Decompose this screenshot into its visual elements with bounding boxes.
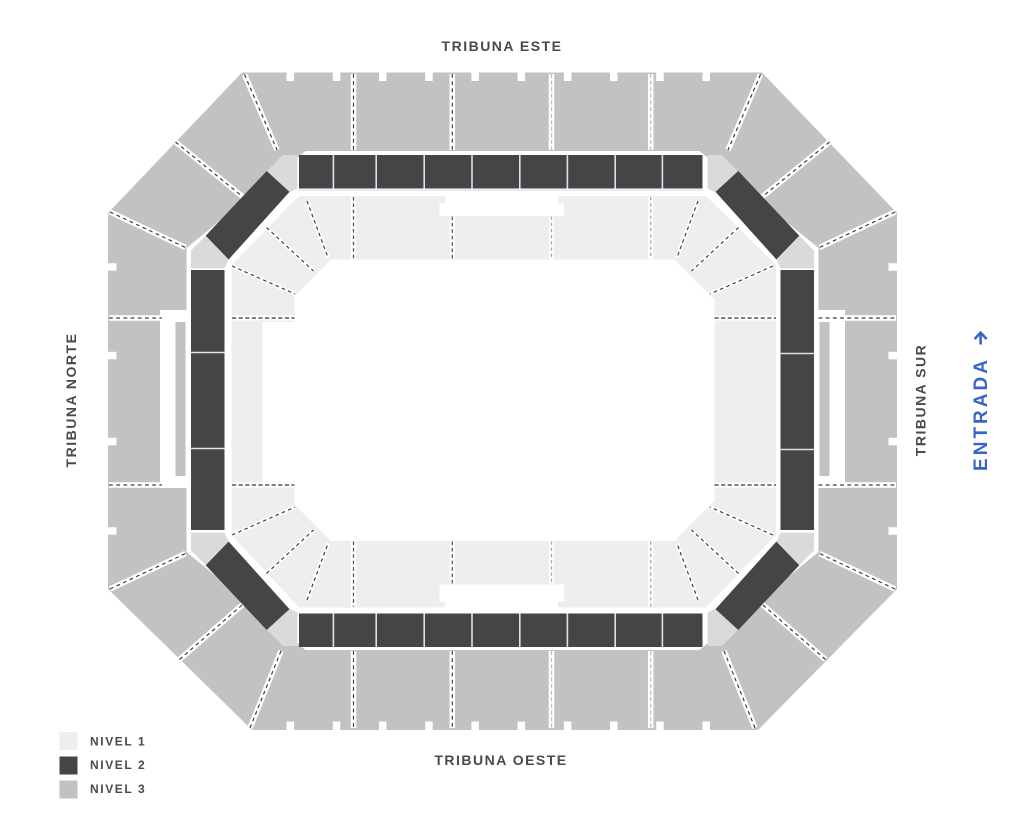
svg-text:TRIBUNA NORTE: TRIBUNA NORTE: [63, 333, 79, 468]
svg-text:NIVEL 2: NIVEL 2: [90, 758, 146, 772]
svg-text:TRIBUNA OESTE: TRIBUNA OESTE: [434, 752, 567, 768]
svg-text:TRIBUNA ESTE: TRIBUNA ESTE: [442, 38, 563, 54]
svg-text:NIVEL 3: NIVEL 3: [90, 782, 146, 796]
svg-text:ENTRADA: ENTRADA: [971, 357, 992, 471]
svg-text:TRIBUNA SUR: TRIBUNA SUR: [913, 344, 929, 456]
svg-text:NIVEL 1: NIVEL 1: [90, 735, 146, 749]
